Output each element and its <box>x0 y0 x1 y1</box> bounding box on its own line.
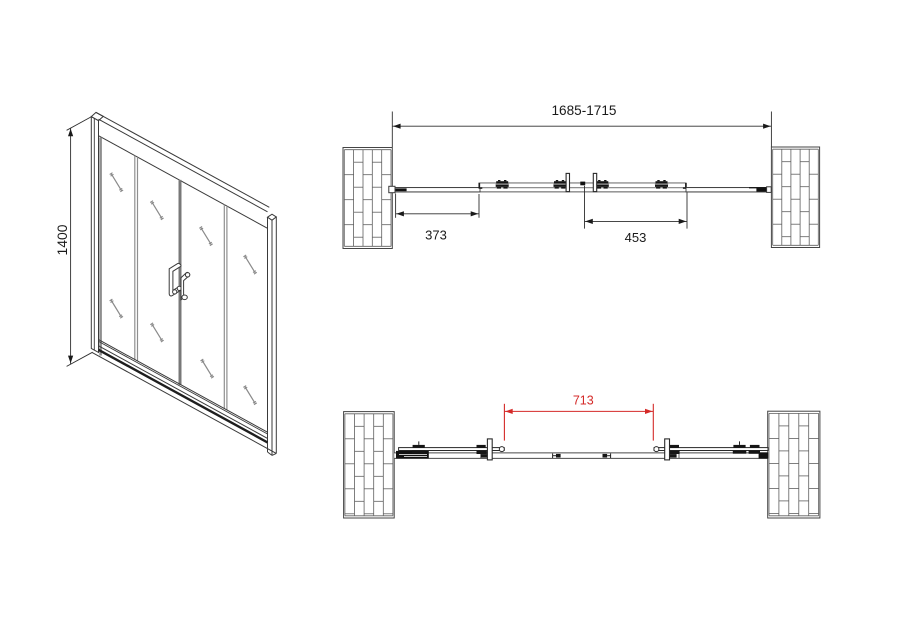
svg-text:453: 453 <box>625 230 647 245</box>
svg-text:1400: 1400 <box>54 224 70 255</box>
svg-text:373: 373 <box>425 228 447 243</box>
svg-text:713: 713 <box>573 394 594 408</box>
svg-text:1685-1715: 1685-1715 <box>551 103 616 118</box>
